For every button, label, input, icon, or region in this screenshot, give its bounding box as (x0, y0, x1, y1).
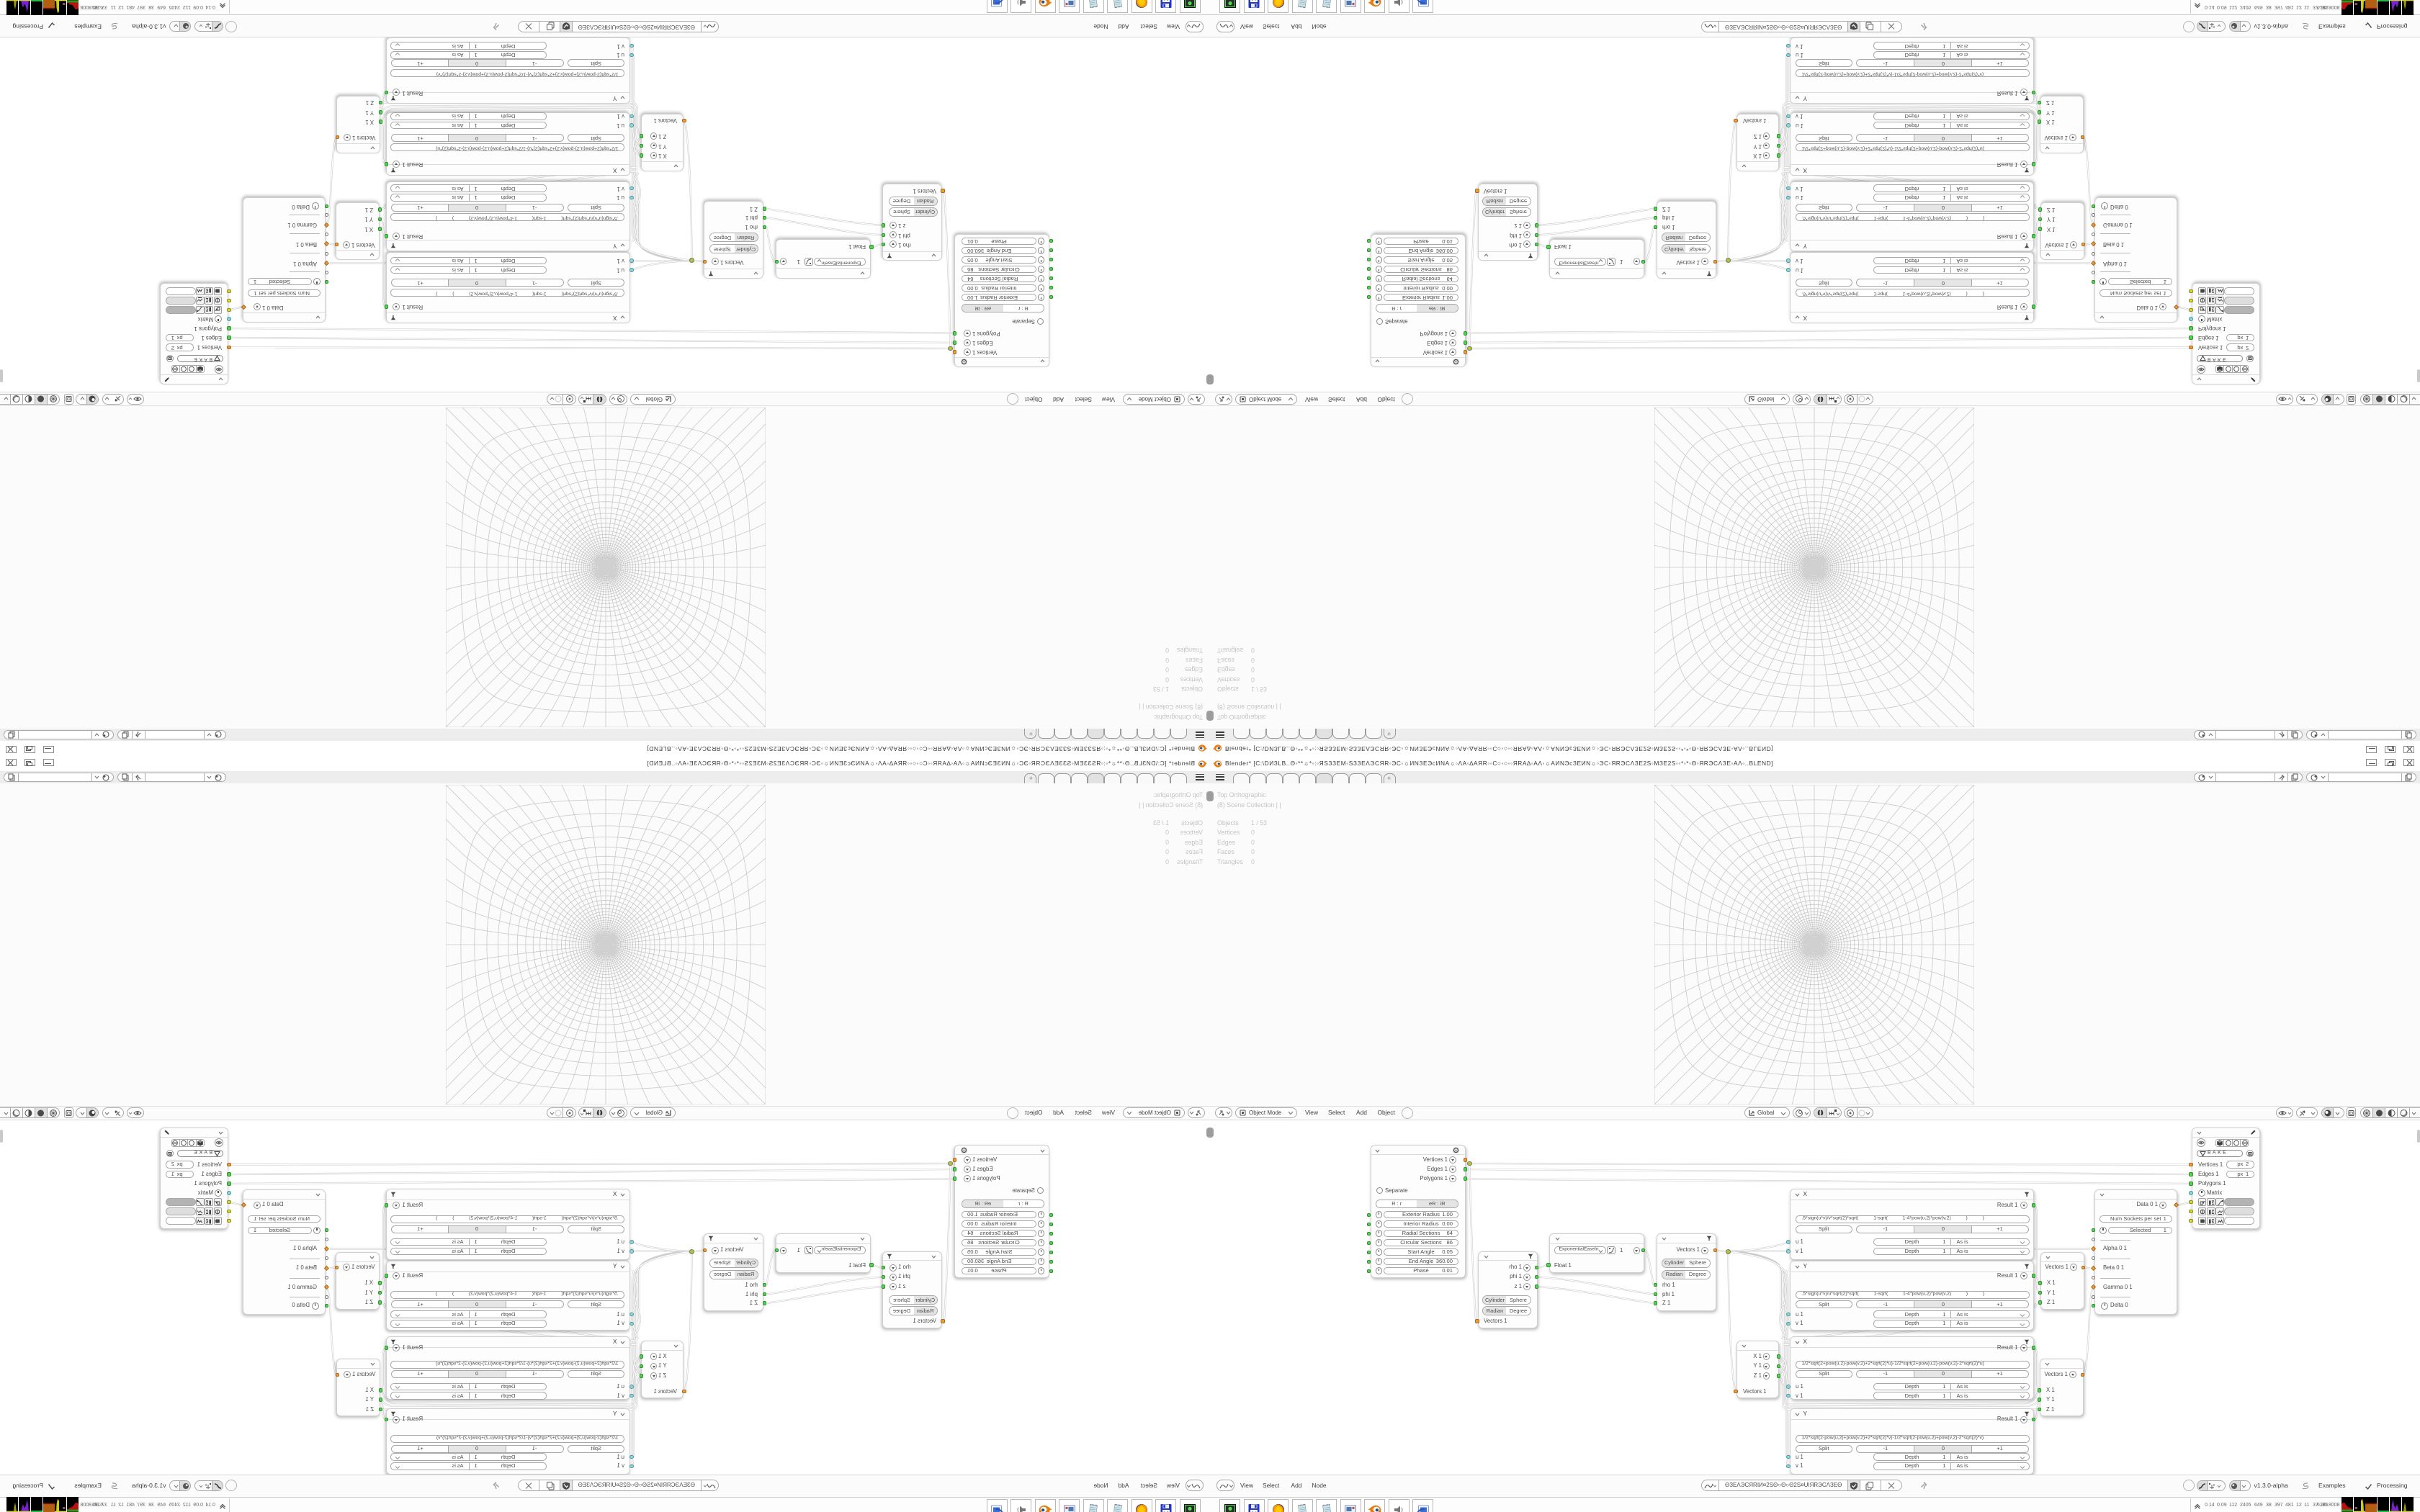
svg-text:64: 64 (1163, 0, 1169, 1)
svg-text:64: 64 (1252, 0, 1258, 1)
